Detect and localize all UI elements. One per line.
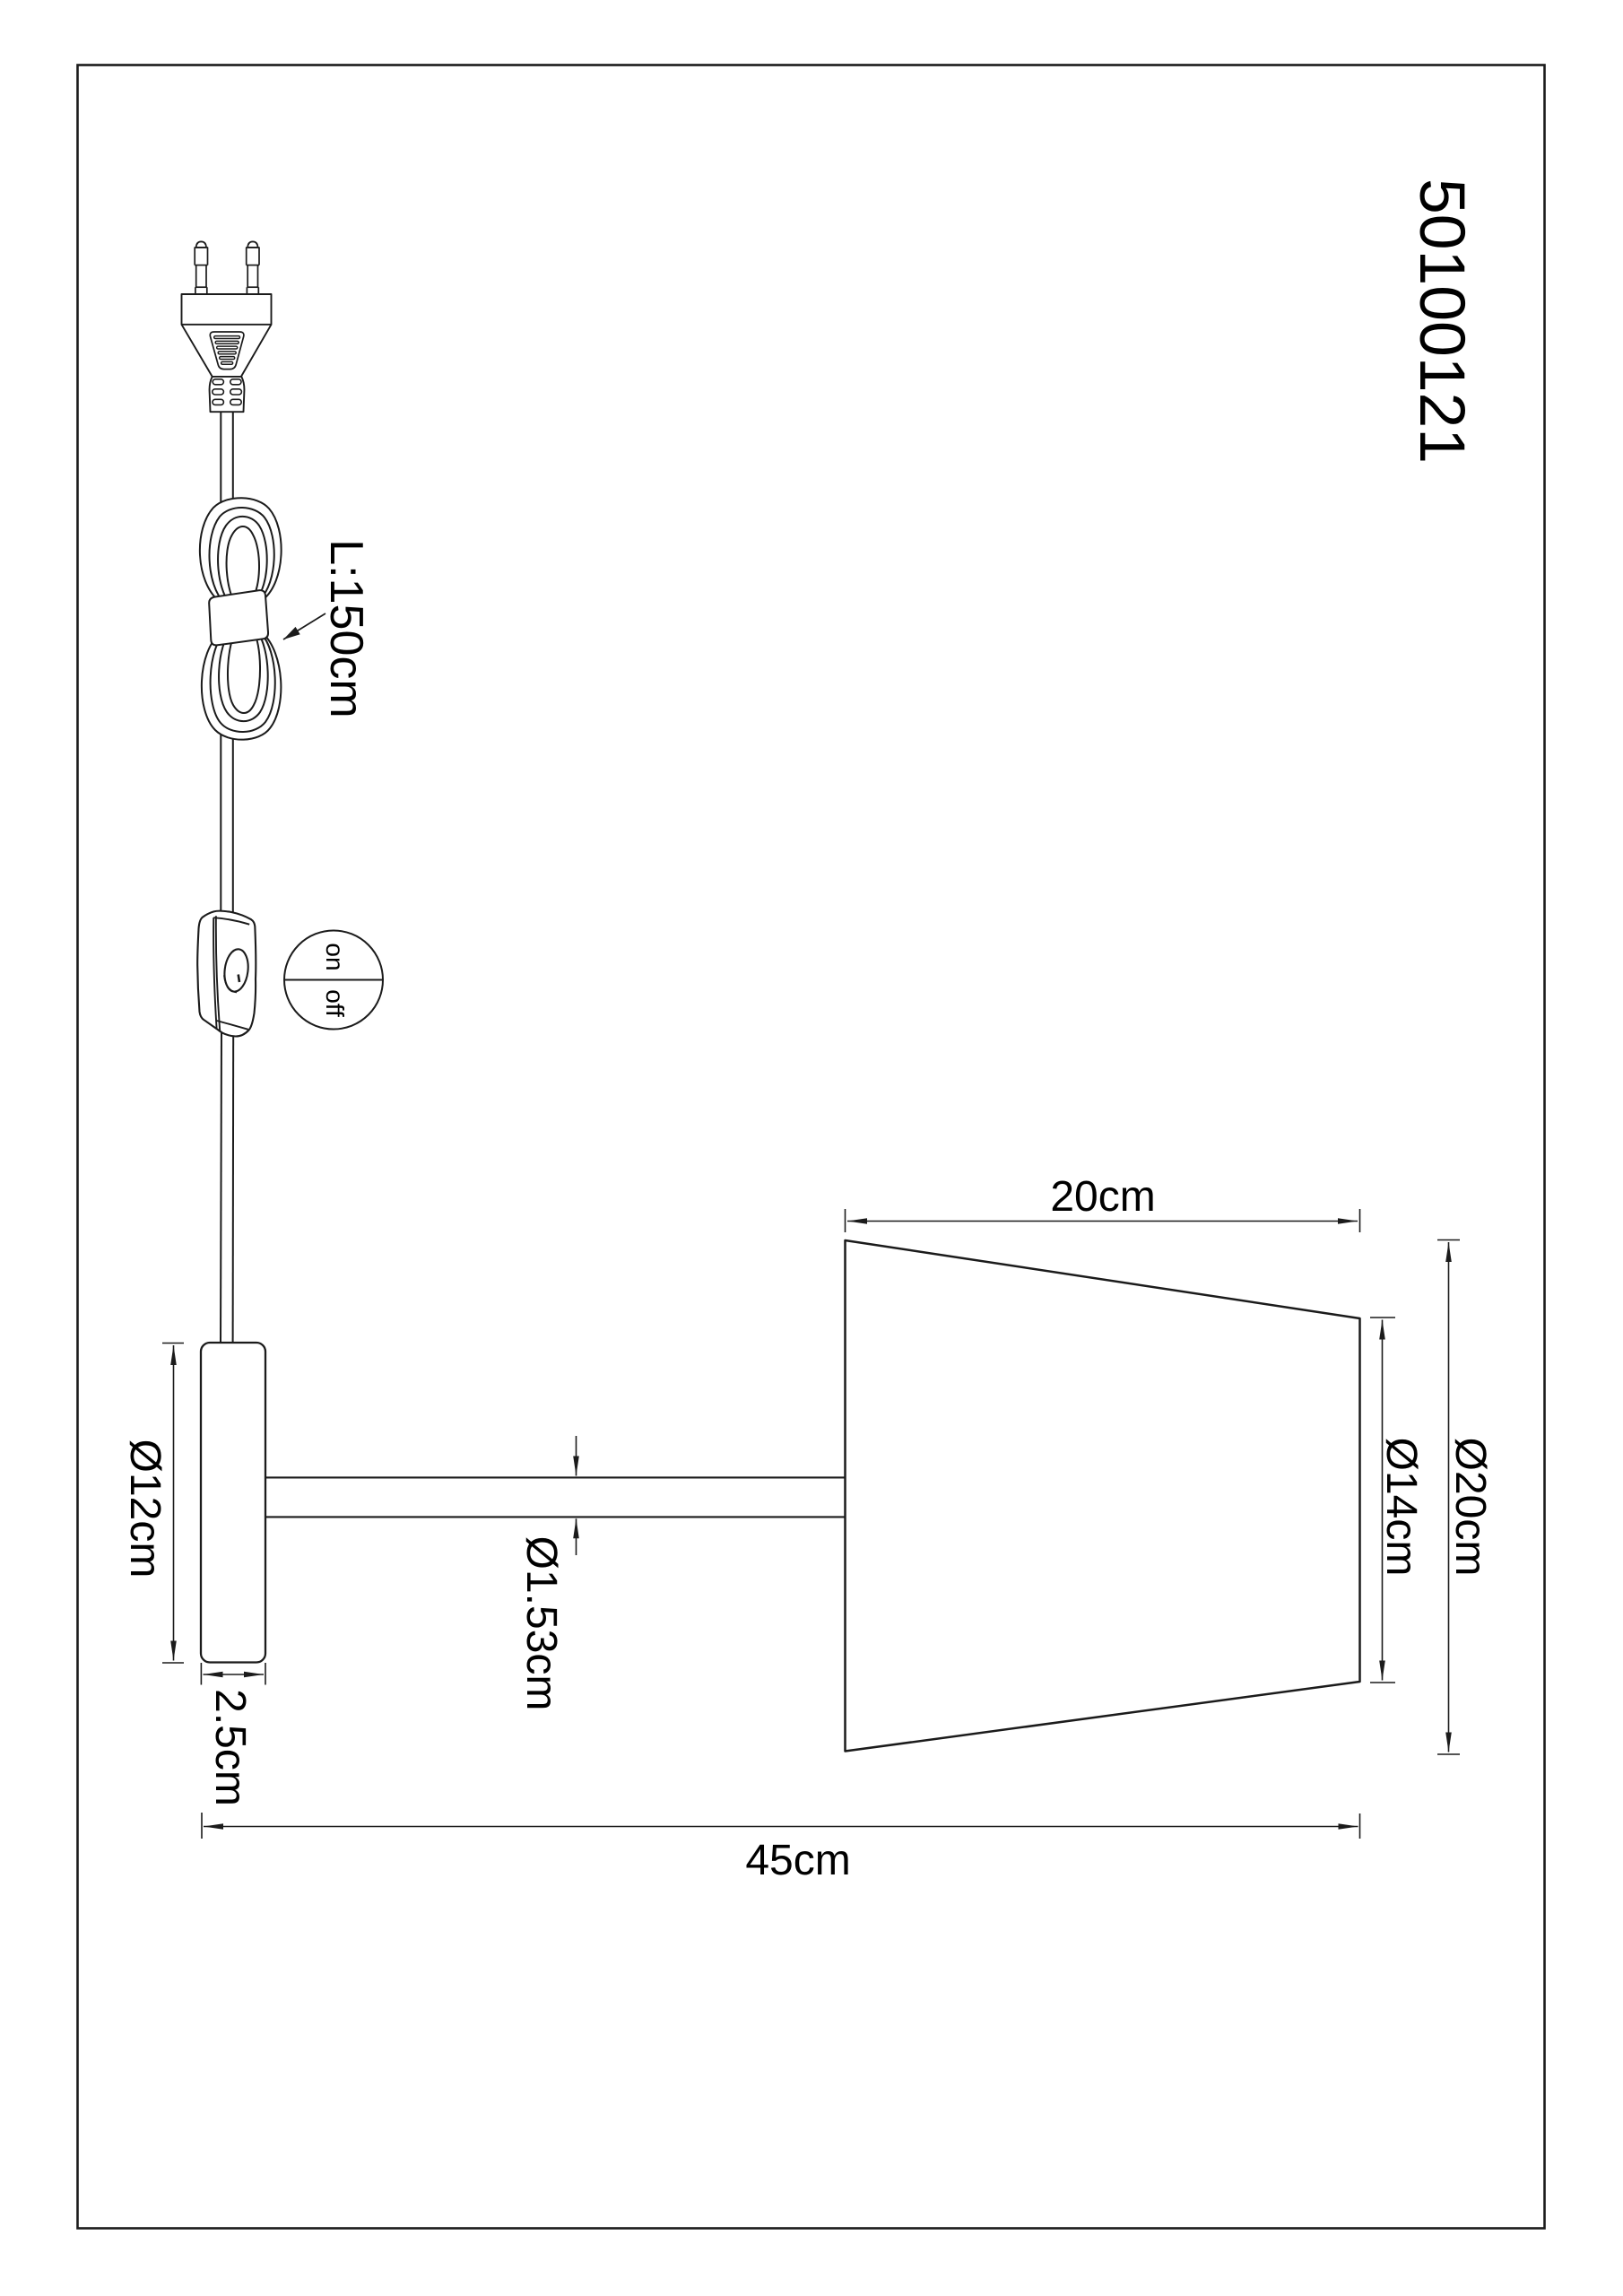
svg-text:20cm: 20cm — [1050, 1173, 1155, 1221]
svg-text:Ø20cm: Ø20cm — [1446, 1438, 1494, 1577]
svg-text:on: on — [321, 943, 349, 970]
svg-text:45cm: 45cm — [745, 1837, 850, 1884]
svg-text:2.5cm: 2.5cm — [206, 1689, 254, 1806]
svg-text:L:150cm: L:150cm — [320, 539, 372, 717]
svg-text:Ø14cm: Ø14cm — [1377, 1438, 1425, 1577]
svg-text:Ø12cm: Ø12cm — [121, 1439, 169, 1578]
svg-text:50100121: 50100121 — [1406, 178, 1478, 464]
svg-text:Ø1.53cm: Ø1.53cm — [517, 1536, 565, 1711]
svg-text:off: off — [321, 989, 349, 1017]
